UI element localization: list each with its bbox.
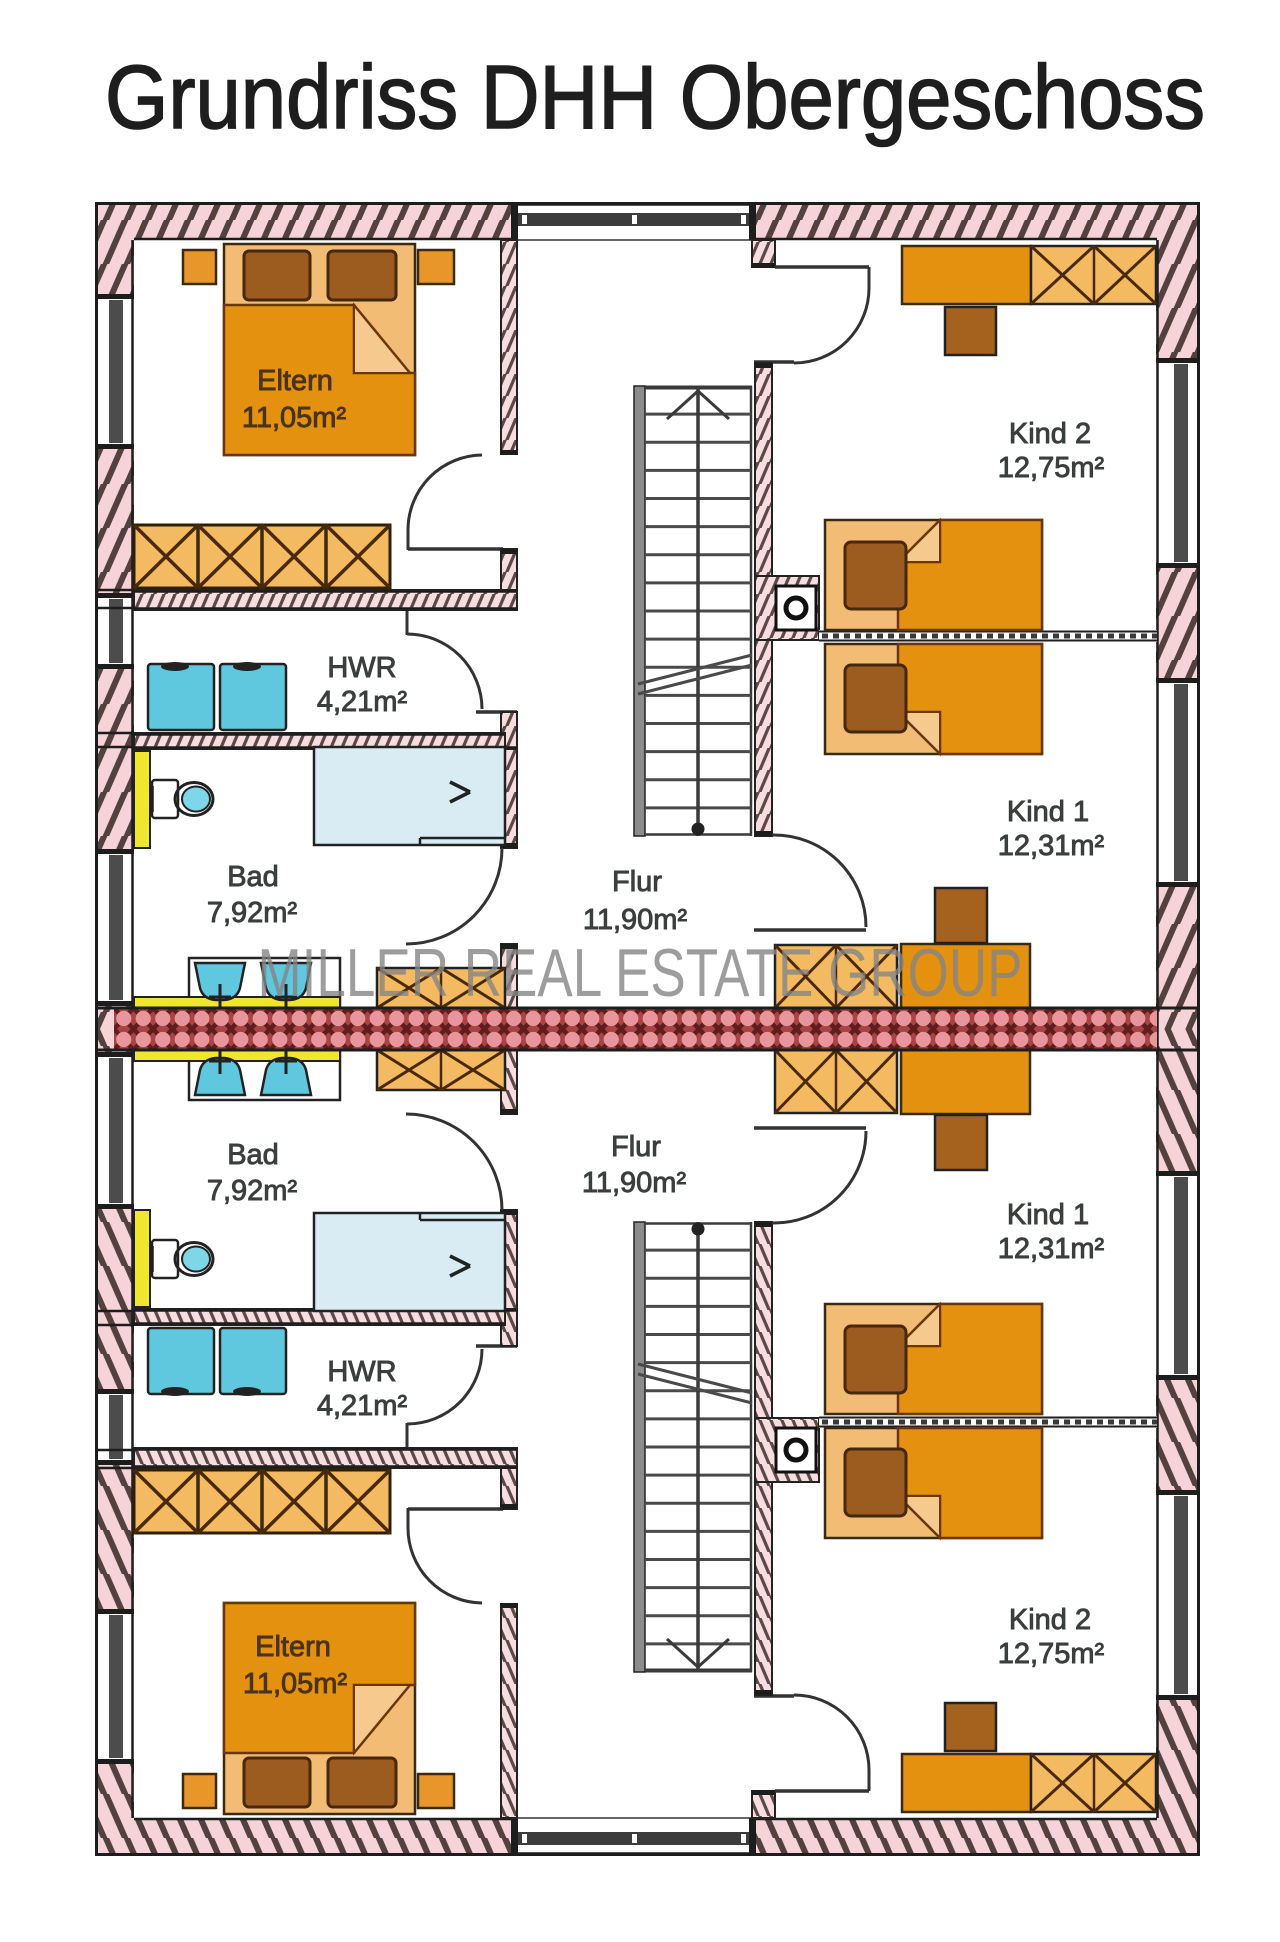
svg-text:Flur: Flur	[612, 866, 662, 898]
svg-text:Bad: Bad	[227, 861, 279, 893]
svg-text:Bad: Bad	[227, 1139, 279, 1171]
svg-text:11,90m²: 11,90m²	[583, 904, 688, 936]
svg-text:4,21m²: 4,21m²	[317, 686, 408, 718]
svg-text:HWR: HWR	[327, 1356, 396, 1388]
svg-text:MILLER REAL ESTATE GROUP: MILLER REAL ESTATE GROUP	[258, 935, 1023, 1011]
svg-text:Kind 1: Kind 1	[1007, 796, 1089, 828]
svg-text:12,75m²: 12,75m²	[998, 452, 1105, 484]
svg-text:Kind 1: Kind 1	[1007, 1199, 1089, 1231]
svg-text:12,75m²: 12,75m²	[998, 1638, 1105, 1670]
svg-text:7,92m²: 7,92m²	[207, 897, 298, 929]
svg-text:11,90m²: 11,90m²	[582, 1167, 687, 1199]
svg-text:12,31m²: 12,31m²	[998, 1233, 1105, 1265]
svg-text:11,05m²: 11,05m²	[243, 1668, 348, 1700]
svg-text:Kind 2: Kind 2	[1009, 1604, 1091, 1636]
svg-text:Eltern: Eltern	[255, 1631, 331, 1663]
svg-text:Grundriss DHH Obergeschoss: Grundriss DHH Obergeschoss	[105, 48, 1205, 148]
svg-text:HWR: HWR	[327, 652, 396, 684]
svg-text:7,92m²: 7,92m²	[207, 1175, 298, 1207]
svg-text:Flur: Flur	[611, 1131, 661, 1163]
svg-text:Eltern: Eltern	[257, 365, 333, 397]
svg-text:4,21m²: 4,21m²	[317, 1390, 408, 1422]
svg-text:Kind 2: Kind 2	[1009, 418, 1091, 450]
svg-text:11,05m²: 11,05m²	[242, 402, 347, 434]
svg-text:12,31m²: 12,31m²	[998, 830, 1105, 862]
